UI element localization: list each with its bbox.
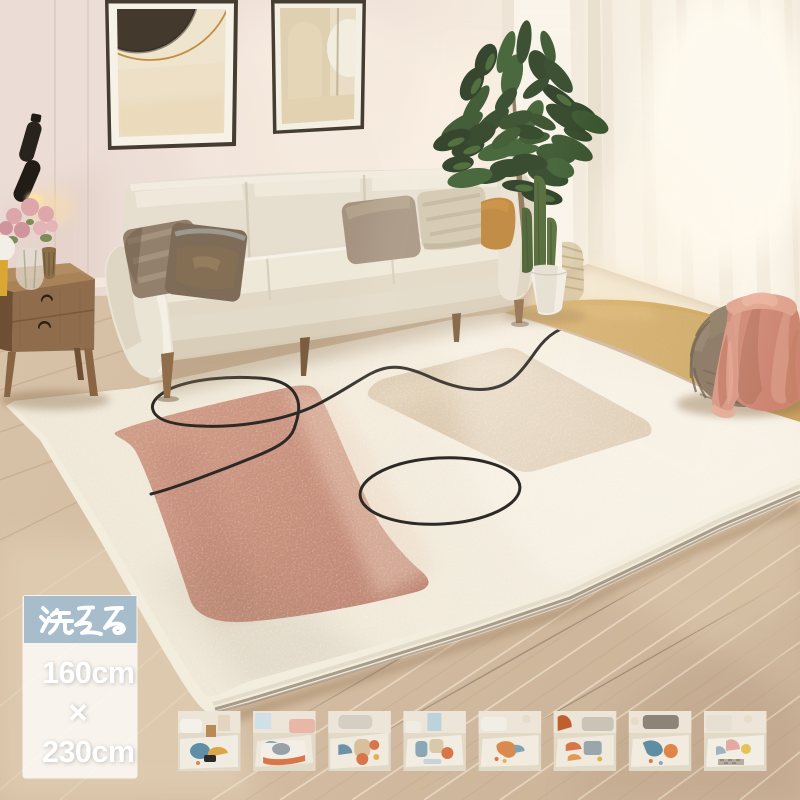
svg-text:×: × — [68, 694, 87, 732]
svg-text:160cm: 160cm — [42, 656, 134, 690]
svg-text:230cm: 230cm — [42, 735, 134, 769]
